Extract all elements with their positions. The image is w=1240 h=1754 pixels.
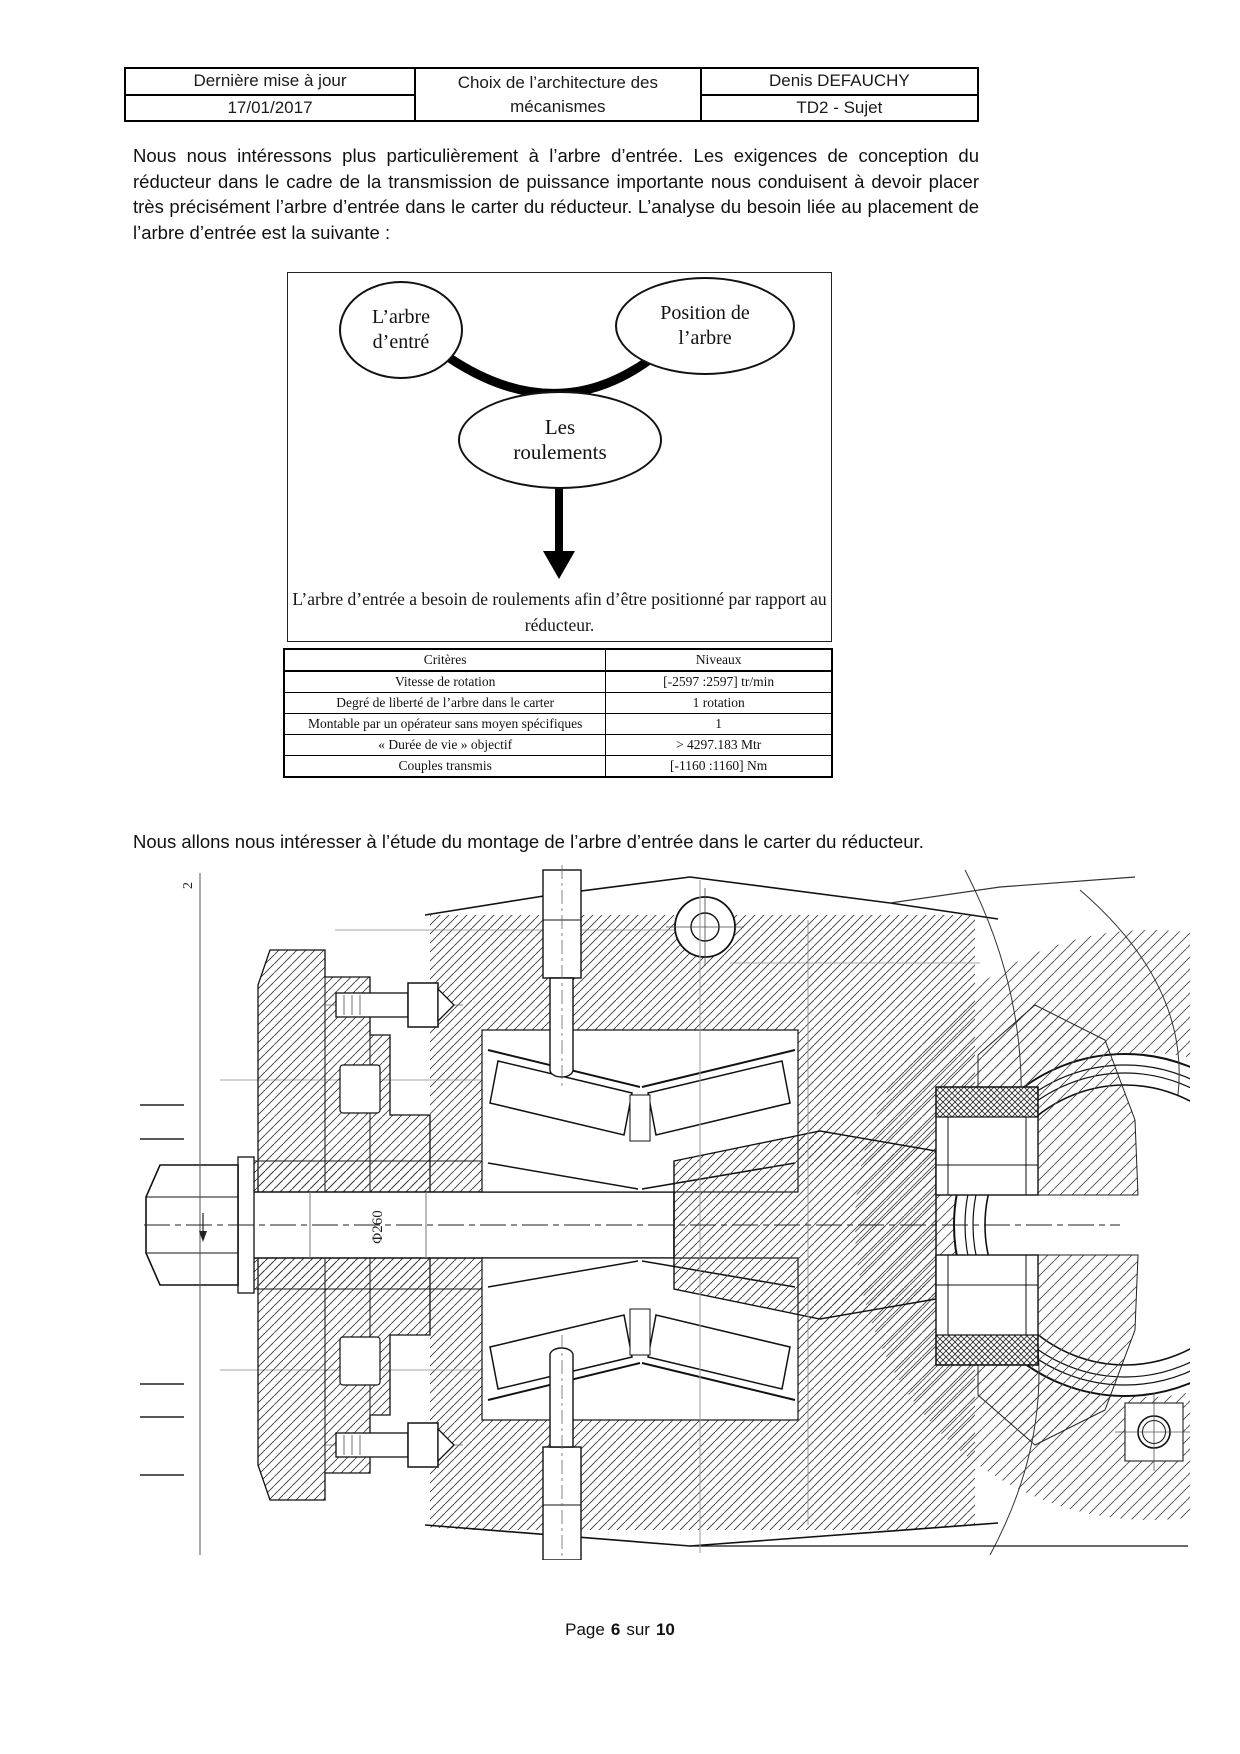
level-cell: [-1160 :1160] Nm xyxy=(606,756,832,778)
header-course-line2: mécanismes xyxy=(416,95,700,119)
col-header-criteres: Critères xyxy=(284,649,606,671)
table-row: Couples transmis [-1160 :1160] Nm xyxy=(284,756,832,778)
header-col-author: Denis DEFAUCHY TD2 - Sujet xyxy=(702,69,977,120)
conclusion-text: L’arbre d’entrée a besoin de roulements … xyxy=(288,586,831,638)
criterion-cell: Vitesse de rotation xyxy=(284,671,606,693)
header-table: Dernière mise à jour 17/01/2017 Choix de… xyxy=(124,67,979,122)
criterion-cell: « Durée de vie » objectif xyxy=(284,735,606,756)
criterion-cell: Couples transmis xyxy=(284,756,606,778)
footer-current-page: 6 xyxy=(611,1620,620,1640)
bubble-roulements: Les roulements xyxy=(458,391,662,489)
bolt-hole-detail xyxy=(1115,1393,1190,1471)
header-course-line1: Choix de l’architecture des xyxy=(416,71,700,95)
level-cell: > 4297.183 Mtr xyxy=(606,735,832,756)
table-row: « Durée de vie » objectif > 4297.183 Mtr xyxy=(284,735,832,756)
section-label: 2 xyxy=(181,882,196,889)
page-footer: Page6sur10 xyxy=(0,1620,1240,1640)
level-cell: 1 xyxy=(606,714,832,735)
conclusion-line2: réducteur. xyxy=(288,612,831,638)
technical-drawing: Φ260 xyxy=(130,865,1190,1560)
bubble-text: d’entré xyxy=(373,330,430,355)
connector-arc xyxy=(448,355,656,394)
footer-word-page: Page xyxy=(565,1620,605,1640)
header-update-label: Dernière mise à jour xyxy=(126,69,414,96)
header-col-update: Dernière mise à jour 17/01/2017 xyxy=(126,69,414,120)
bubble-text: Position de xyxy=(660,301,749,326)
study-paragraph: Nous allons nous intéresser à l’étude du… xyxy=(133,829,979,855)
table-row: Montable par un opérateur sans moyen spé… xyxy=(284,714,832,735)
header-doc-ref: TD2 - Sujet xyxy=(702,96,977,121)
down-arrow-icon xyxy=(543,551,575,579)
footer-word-sur: sur xyxy=(626,1620,650,1640)
level-cell: 1 rotation xyxy=(606,693,832,714)
header-course-title: Choix de l’architecture des mécanismes xyxy=(414,69,702,120)
col-header-niveaux: Niveaux xyxy=(606,649,832,671)
diameter-label: Φ260 xyxy=(370,1210,386,1243)
criteria-table: Critères Niveaux Vitesse de rotation [-2… xyxy=(283,648,833,778)
header-author-name: Denis DEFAUCHY xyxy=(702,69,977,96)
table-row: Degré de liberté de l’arbre dans le cart… xyxy=(284,693,832,714)
conclusion-line1: L’arbre d’entrée a besoin de roulements … xyxy=(288,586,831,612)
criteria-header-row: Critères Niveaux xyxy=(284,649,832,671)
bubble-text: l’arbre xyxy=(678,326,731,351)
bubble-text: Les xyxy=(545,415,575,440)
intro-paragraph: Nous nous intéressons plus particulièrem… xyxy=(133,143,979,245)
table-row: Vitesse de rotation [-2597 :2597] tr/min xyxy=(284,671,832,693)
header-update-date: 17/01/2017 xyxy=(126,96,414,121)
bubble-text: L’arbre xyxy=(372,305,430,330)
criterion-cell: Montable par un opérateur sans moyen spé… xyxy=(284,714,606,735)
level-cell: [-2597 :2597] tr/min xyxy=(606,671,832,693)
bubble-position-arbre: Position de l’arbre xyxy=(615,277,795,375)
document-page: Dernière mise à jour 17/01/2017 Choix de… xyxy=(0,0,1240,1754)
bubble-text: roulements xyxy=(513,440,606,465)
need-analysis-diagram: L’arbre d’entré Position de l’arbre Les … xyxy=(287,272,832,642)
bubble-arbre-entree: L’arbre d’entré xyxy=(339,281,463,379)
footer-total-pages: 10 xyxy=(656,1620,675,1640)
criterion-cell: Degré de liberté de l’arbre dans le cart… xyxy=(284,693,606,714)
